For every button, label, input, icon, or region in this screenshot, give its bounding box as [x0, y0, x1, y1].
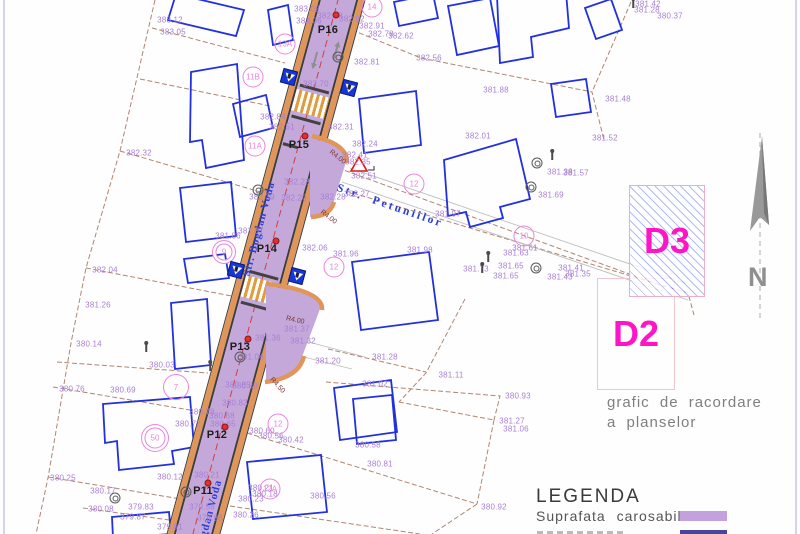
elevation-label: 380.37: [657, 12, 683, 21]
elevation-label: 383.02: [294, 5, 320, 14]
legend-item-carriageway: Suprafata carosabila: [536, 508, 690, 524]
elevation-label: 383.05: [160, 28, 186, 37]
utility-pole-icon: [209, 363, 211, 371]
elevation-label: 380.14: [76, 340, 102, 349]
elevation-label: 381.11: [438, 371, 463, 380]
crossing-triangle-icon: [230, 265, 242, 275]
elevation-label: 382.84: [260, 113, 286, 122]
elevation-label: 381.86: [215, 232, 241, 241]
elevation-label: 381.28: [634, 6, 660, 15]
parcel-number: 7: [163, 374, 189, 400]
parcel-number: 11A: [245, 136, 266, 157]
parcel-number: 11B: [243, 67, 264, 88]
survey-point-label: P14: [257, 243, 277, 255]
elevation-label: 382.51: [269, 123, 295, 132]
elevation-label: 380.69: [110, 386, 136, 395]
manhole-icon: [531, 263, 542, 274]
elevation-label: 380.26: [233, 511, 259, 520]
survey-point-label: P12: [207, 429, 227, 441]
parcel-number: 13A: [275, 34, 296, 55]
elevation-label: 380.83: [222, 399, 248, 408]
elevation-label: 381.36: [255, 334, 281, 343]
elevation-label: 382.32: [126, 149, 152, 158]
elevation-label: 381.63: [503, 249, 529, 258]
parcel-number: 12A: [260, 479, 281, 500]
elevation-label: 379.87: [120, 513, 146, 522]
elevation-label: 381.88: [483, 86, 509, 95]
elevation-label: 380.03: [149, 361, 175, 370]
elevation-label: 381.37: [284, 325, 310, 334]
manhole-icon: [333, 52, 344, 63]
crossing-triangle-icon: [283, 72, 295, 82]
elevation-label: 383.12: [157, 16, 183, 25]
legend-swatch-carriageway: [680, 511, 727, 521]
manhole-icon: [532, 158, 543, 169]
legend-swatch-second-partial: [680, 530, 727, 534]
elevation-label: 381.97: [435, 210, 461, 219]
elevation-label: 380.92: [481, 503, 507, 512]
elevation-label: 380.42: [278, 436, 304, 445]
parcel-number: 12: [324, 257, 345, 278]
elevation-label: 381.65: [498, 262, 524, 271]
elevation-label: 382.56: [416, 54, 442, 63]
elevation-label: 380.81: [367, 460, 393, 469]
elevation-label: 379.83: [128, 503, 154, 512]
survey-point-dot: [333, 12, 340, 19]
elevation-label: 381.26: [85, 301, 111, 310]
utility-pole-icon: [145, 344, 147, 352]
elevation-label: 380.25: [50, 474, 76, 483]
sheet-d2-label: D2: [613, 313, 659, 355]
elevation-label: 382.23: [284, 178, 310, 187]
elevation-label: 381.32: [290, 337, 316, 346]
parcel-number: 12: [268, 414, 289, 435]
elevation-label: 382.70: [303, 80, 329, 89]
elevation-label: 382.81: [354, 58, 380, 67]
legend-title: LEGENDA: [536, 486, 641, 508]
parcel-number: 12: [404, 174, 425, 195]
elevation-label: 380.76: [59, 385, 85, 394]
elevation-label: 381.43: [547, 273, 573, 282]
elevation-label: 382.27: [344, 190, 370, 199]
elevation-label: 380.72: [175, 420, 201, 429]
elevation-label: 380.08: [88, 505, 114, 514]
elevation-label: 381.02: [362, 380, 388, 389]
elevation-label: 382.31: [328, 123, 354, 132]
north-label: N: [748, 262, 768, 293]
manhole-icon: [253, 185, 264, 196]
elevation-label: 382.01: [465, 132, 491, 141]
utility-pole-icon: [632, 0, 634, 8]
north-arrow: [750, 133, 769, 322]
utility-pole-icon: [551, 152, 553, 160]
elevation-label: 381.98: [407, 246, 433, 255]
manhole-icon: [526, 182, 537, 193]
elevation-label: 381.28: [372, 353, 398, 362]
survey-point-label: P16: [318, 24, 338, 36]
manhole-icon: [235, 352, 246, 363]
elevation-label: 382.62: [388, 32, 414, 41]
elevation-label: 382.20: [281, 194, 307, 203]
survey-point-label: P15: [289, 139, 309, 151]
elevation-label: 380.21: [194, 471, 220, 480]
elevation-label: 379.58: [189, 503, 215, 512]
elevation-label: 380.93: [505, 392, 531, 401]
elevation-label: 381.06: [503, 425, 529, 434]
inset-caption-line1: grafic de racordare: [607, 394, 762, 411]
elevation-label: 382.06: [302, 244, 328, 253]
elevation-label: 379.91: [157, 523, 183, 532]
utility-pole-icon: [487, 254, 489, 262]
elevation-label: 382.24: [352, 140, 378, 149]
parcel-number: 10: [514, 226, 535, 247]
elevation-label: 381.65: [493, 272, 519, 281]
survey-point-label: P11: [193, 485, 213, 497]
inset-caption-line2: a planselor: [607, 414, 696, 431]
elevation-label: 379.88: [197, 514, 223, 523]
plan-canvas: Str. Bogdan Voda Str. Bogdan Voda Str. P…: [0, 0, 800, 534]
elevation-label: 380.23: [238, 495, 264, 504]
parcel-number: 9: [216, 244, 233, 261]
elevation-label: 381.57: [563, 169, 589, 178]
elevation-label: 380.58: [355, 441, 381, 450]
elevation-label: 381.73: [463, 265, 489, 274]
parcel-number: 50: [145, 428, 166, 449]
elevation-label: 380.12: [157, 473, 183, 482]
elevation-label: 382.35: [345, 158, 371, 167]
manhole-icon: [181, 487, 192, 498]
elevation-label: 381.69: [538, 191, 564, 200]
elevation-label: 382.28: [320, 193, 346, 202]
elevation-label: 381.81: [238, 227, 264, 236]
crossing-triangle-icon: [343, 83, 355, 93]
elevation-label: 381.20: [315, 357, 341, 366]
utility-pole-icon: [481, 265, 483, 273]
sheet-d3-label: D3: [644, 220, 690, 262]
elevation-label: 381.48: [605, 95, 631, 104]
elevation-label: 381.52: [592, 134, 618, 143]
elevation-label: 380.56: [310, 492, 336, 501]
elevation-label: 382.39: [249, 193, 275, 202]
crossing-triangle-icon: [291, 271, 303, 281]
elevation-label: 382.51: [351, 172, 377, 181]
elevation-label: 380.85: [225, 381, 251, 390]
sheet-d3-outline: D3: [629, 185, 705, 297]
manhole-icon: [110, 493, 121, 504]
elevation-label: 382.04: [92, 266, 118, 275]
